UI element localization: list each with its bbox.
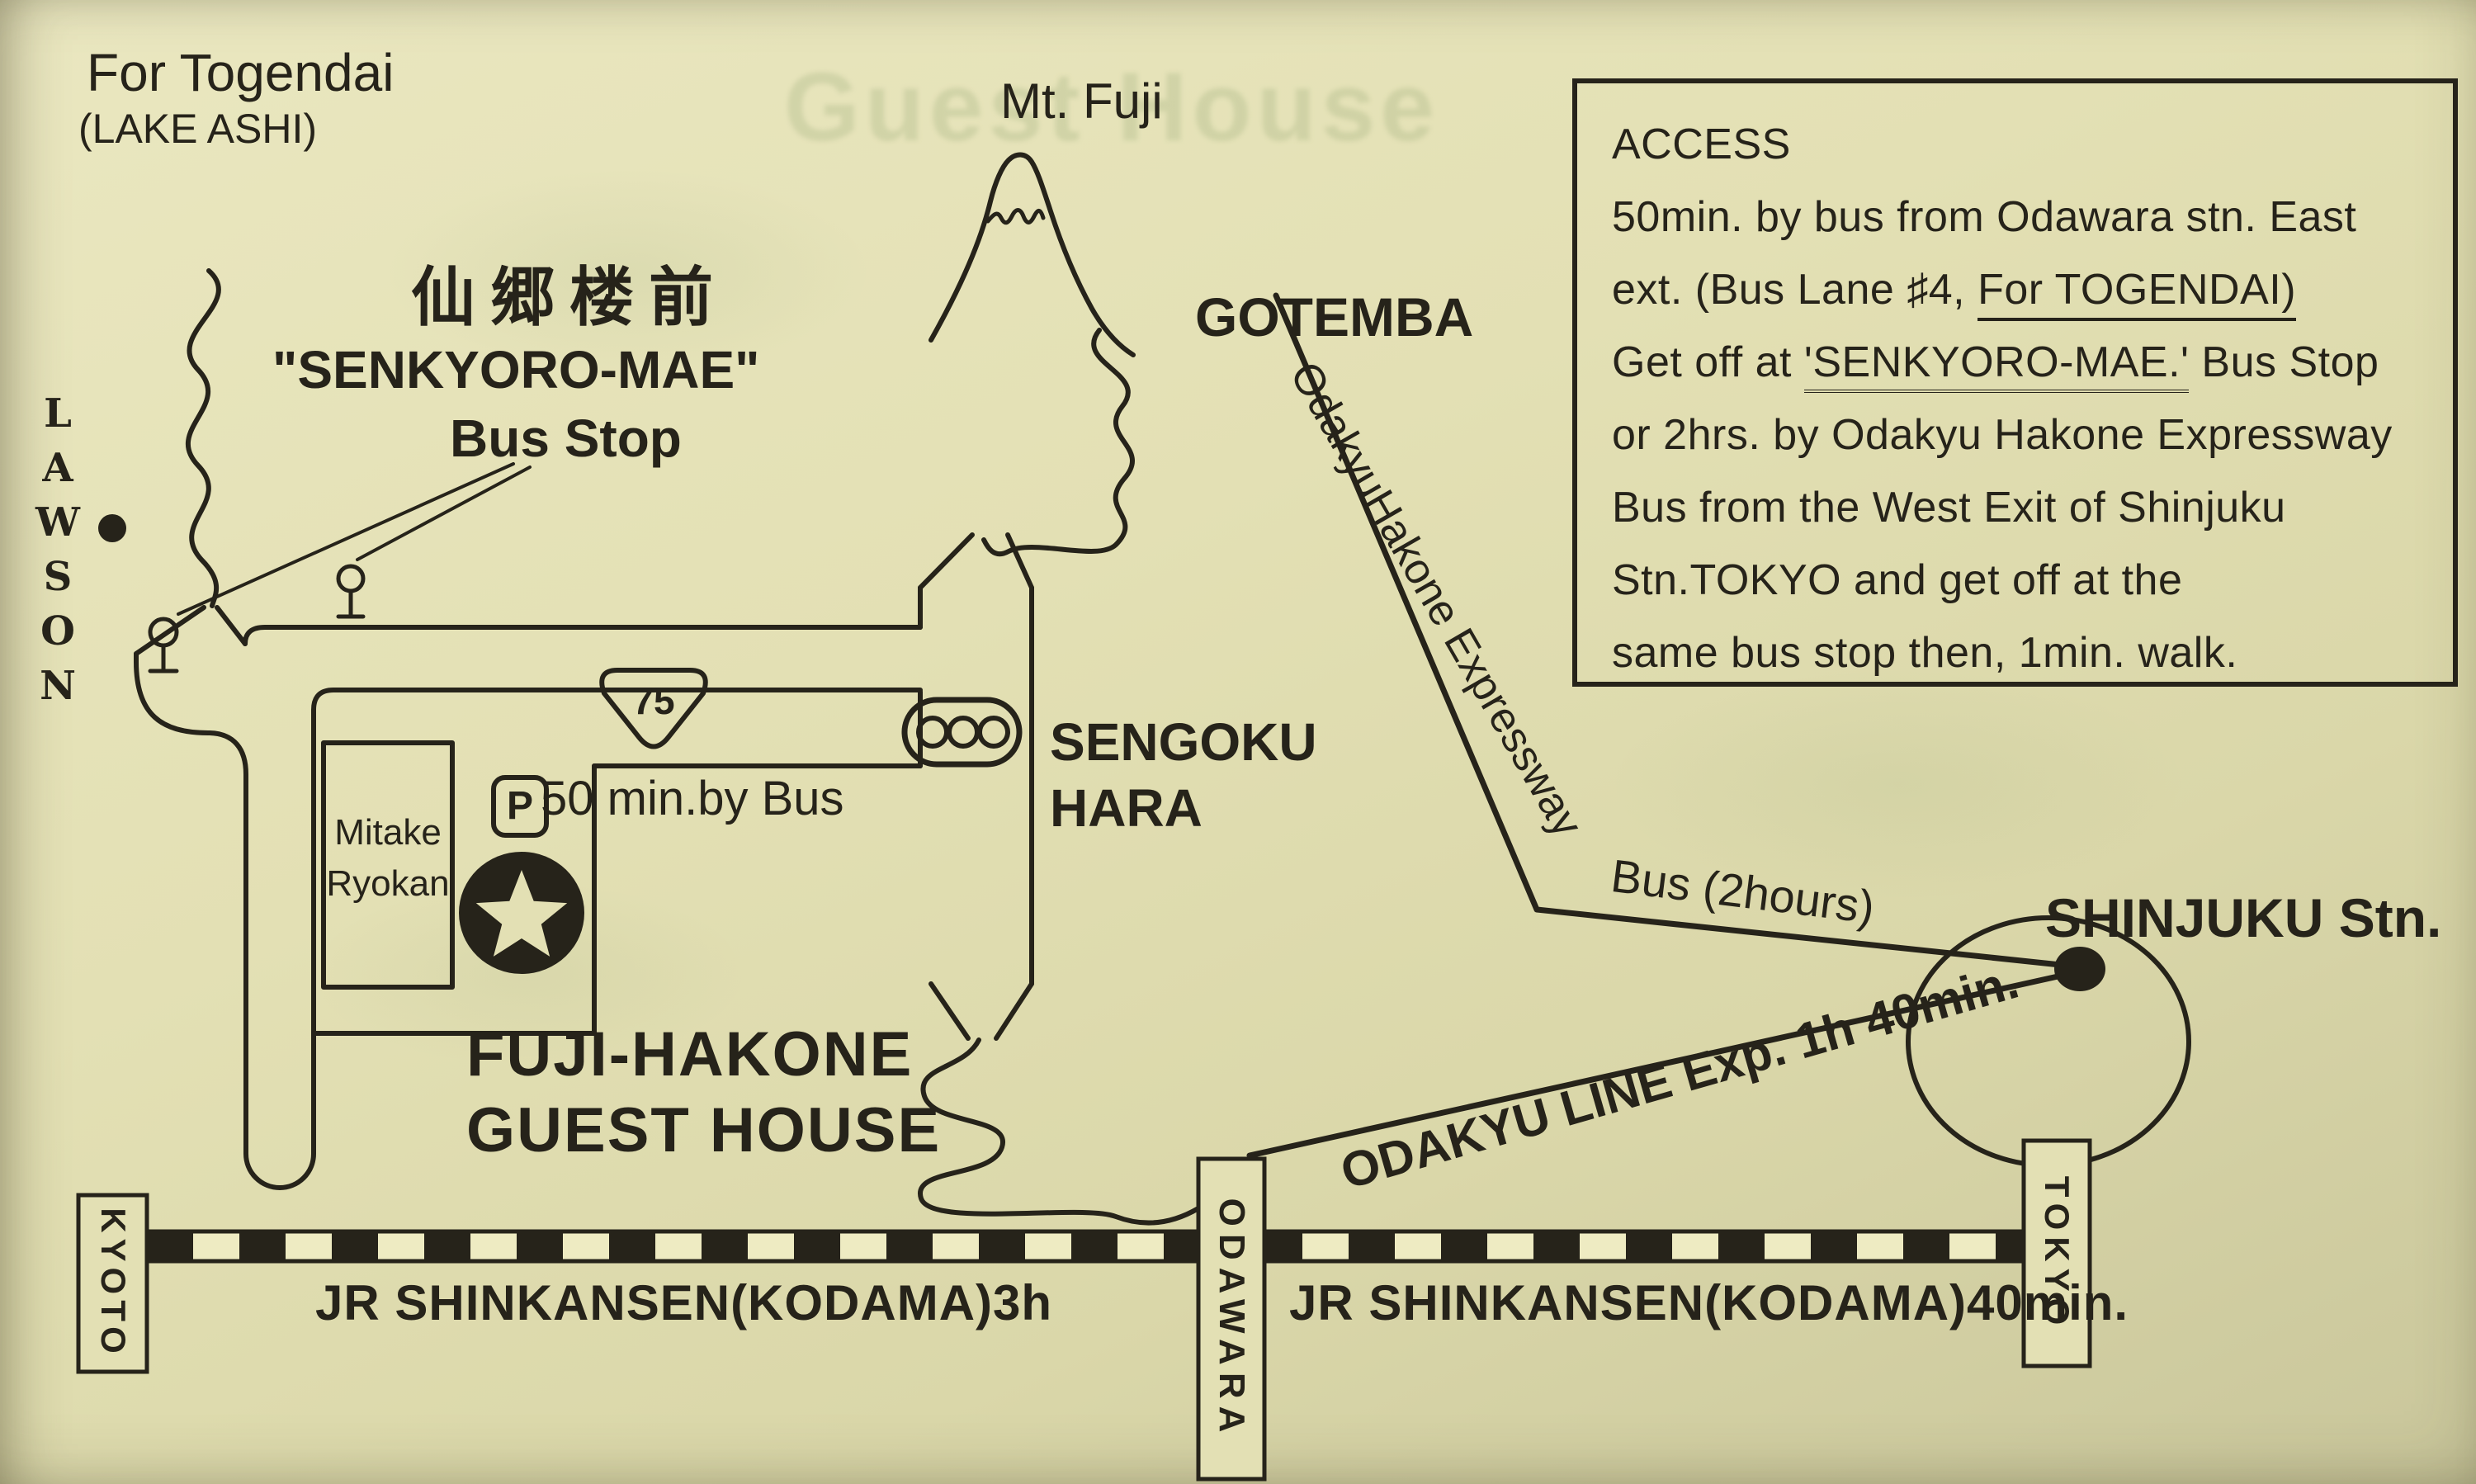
sengoku-label-line1: SENGOKU xyxy=(1050,715,1317,770)
gotemba-road xyxy=(984,330,1132,554)
odawara-station-text: ODAWARA xyxy=(1211,1198,1252,1440)
tokyo-station-text: TOKYO xyxy=(2037,1175,2077,1331)
traffic-light-lamp-3 xyxy=(980,718,1008,746)
mitake-label-line2: Ryokan xyxy=(324,865,452,903)
lawson-dot xyxy=(98,514,126,542)
main-road-top-edge xyxy=(245,627,920,644)
main-road-arrow-right xyxy=(217,607,245,644)
access-text: Bus from the West Exit of Shinjuku xyxy=(1612,484,2286,532)
parking-letter: P xyxy=(494,786,546,827)
lawson-letter: A xyxy=(28,441,87,495)
access-text: ACCESS xyxy=(1612,121,1791,168)
lawson-label: LAWSON xyxy=(28,386,87,713)
lawson-letter: S xyxy=(28,550,87,604)
access-panel: ACCESS50min. by bus from Odawara stn. Ea… xyxy=(1572,78,2458,687)
access-text: 50min. by bus from Odawara stn. East xyxy=(1612,193,2356,241)
senkyoro-busstop-label: Bus Stop xyxy=(450,411,682,466)
busstop-pointer-right xyxy=(357,467,530,560)
mt-fuji-outline xyxy=(931,154,1133,355)
route-75-number: 75 xyxy=(617,682,690,721)
access-text: same bus stop then, 1min. walk. xyxy=(1612,629,2237,677)
traffic-light-lamp-1 xyxy=(919,718,947,746)
access-underlined-text: For TOGENDAI) xyxy=(1977,266,2296,321)
busstop-sign-right xyxy=(338,566,363,591)
yamanote-loop xyxy=(1908,918,2189,1165)
senkyoro-kanji-label: 仙郷楼前 xyxy=(355,264,784,331)
access-text-line: 50min. by bus from Odawara stn. East xyxy=(1612,181,2453,253)
mt-fuji-snowline xyxy=(988,210,1043,223)
shinjuku-label: SHINJUKU Stn. xyxy=(2045,890,2441,947)
jr-shinkansen-left-label: JR SHINKANSEN(KODAMA)3h xyxy=(315,1278,1052,1329)
main-road-arrow-left xyxy=(136,607,204,654)
access-text: ext. (Bus Lane ♯4, xyxy=(1612,266,1977,314)
railway-right-ties xyxy=(1264,1231,2024,1261)
odawara-station-label: ODAWARA xyxy=(1198,1159,1264,1479)
tokyo-station-label: TOKYO xyxy=(2024,1141,2090,1366)
railway-left-ties xyxy=(147,1231,1198,1261)
togendai-road xyxy=(188,271,219,606)
bus-route-road xyxy=(920,1040,1198,1223)
sengoku-bottom-arrow-right xyxy=(996,984,1032,1038)
bus-50min-label: 50 min.by Bus xyxy=(541,774,844,824)
access-text-line: Get off at 'SENKYORO-MAE.' Bus Stop xyxy=(1612,326,2453,399)
busstop-pole-left xyxy=(150,645,177,671)
access-text: Stn.TOKYO and get off at the xyxy=(1612,556,2182,604)
gotemba-label: GOTEMBA xyxy=(1195,289,1473,346)
access-text-line: or 2hrs. by Odakyu Hakone Expressway xyxy=(1612,399,2453,471)
senkyoro-romaji-label: "SENKYORO-MAE" xyxy=(272,343,760,398)
guesthouse-label-line2: GUEST HOUSE xyxy=(466,1098,941,1163)
kyoto-station-text: KYOTO xyxy=(93,1208,133,1359)
togendai-label-line2: (LAKE ASHI) xyxy=(78,107,317,150)
kyoto-station-label: KYOTO xyxy=(78,1195,147,1372)
mt-fuji-label: Mt. Fuji xyxy=(1000,76,1163,127)
sengoku-bottom-arrow-left xyxy=(931,984,968,1038)
busstop-pole-right xyxy=(338,591,363,617)
lawson-letter: N xyxy=(28,659,87,713)
access-underlined-text: 'SENKYORO-MAE.' xyxy=(1804,338,2190,393)
shinjuku-dot xyxy=(2054,947,2105,991)
access-text-line: ext. (Bus Lane ♯4, For TOGENDAI) xyxy=(1612,253,2453,326)
access-text-line: Stn.TOKYO and get off at the xyxy=(1612,544,2453,617)
lawson-letter: O xyxy=(28,604,87,659)
access-text: Bus Stop xyxy=(2189,338,2379,386)
togendai-label-line1: For Togendai xyxy=(87,45,394,101)
sengoku-road-right-slant xyxy=(1008,535,1032,588)
access-text-line: Bus from the West Exit of Shinjuku xyxy=(1612,471,2453,544)
access-text: or 2hrs. by Odakyu Hakone Expressway xyxy=(1612,411,2393,459)
access-text: Get off at xyxy=(1612,338,1804,386)
sengoku-road-left-slant xyxy=(920,535,972,588)
lawson-letter: L xyxy=(28,386,87,441)
traffic-light-lamp-2 xyxy=(949,718,977,746)
mitake-label-line1: Mitake xyxy=(324,814,452,852)
access-text-line: same bus stop then, 1min. walk. xyxy=(1612,617,2453,689)
map-card: Guest House xyxy=(0,0,2476,1484)
access-text-line: ACCESS xyxy=(1612,108,2453,181)
sengoku-label-line2: HARA xyxy=(1050,781,1203,836)
guesthouse-label-line1: FUJI-HAKONE xyxy=(466,1022,913,1087)
lawson-letter: W xyxy=(28,495,87,550)
jr-shinkansen-right-label: JR SHINKANSEN(KODAMA)40min. xyxy=(1289,1278,2129,1329)
